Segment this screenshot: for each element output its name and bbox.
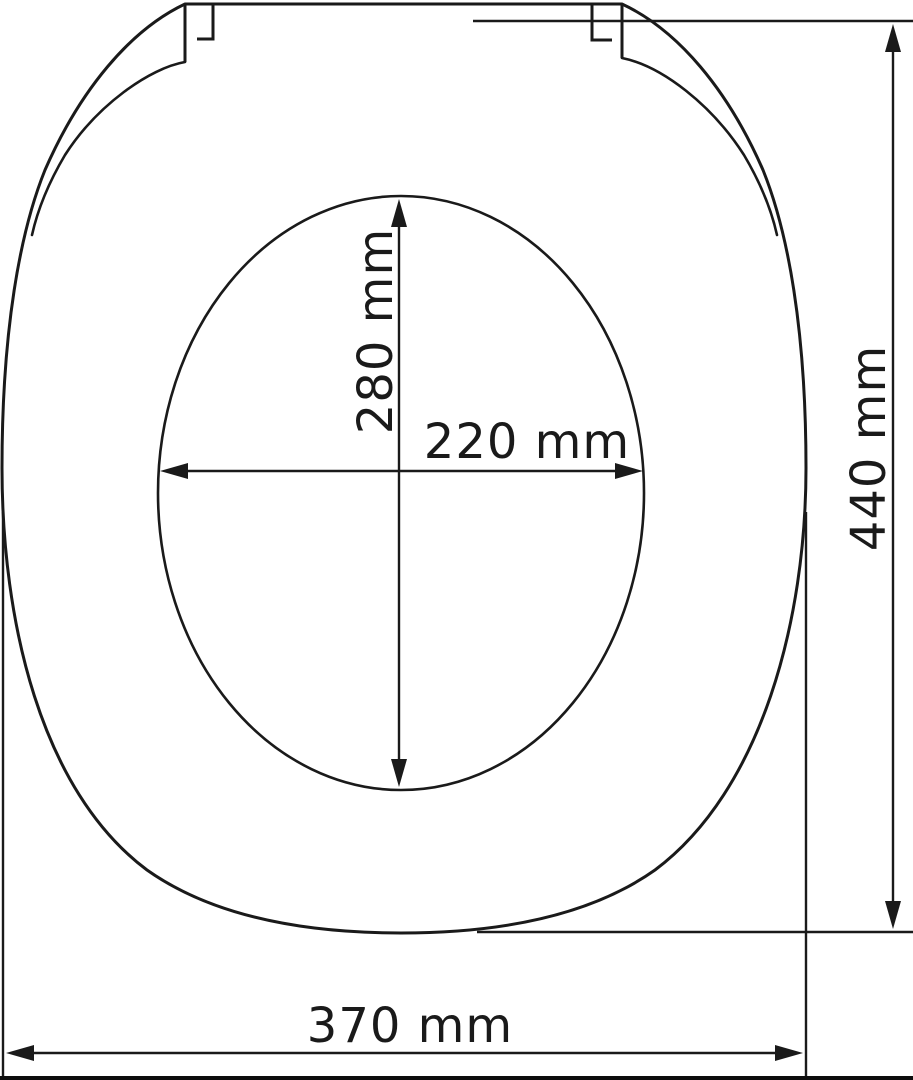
arrow-down-icon <box>391 759 407 787</box>
dimension-overall-length: 440 mm <box>473 21 913 932</box>
dimension-diagram-page: 280 mm 220 mm 440 mm 370 mm <box>0 0 913 1080</box>
seat-back-edge-right <box>622 58 777 235</box>
opening-width-label: 220 mm <box>424 414 630 470</box>
toilet-seat-dimension-diagram: 280 mm 220 mm 440 mm 370 mm <box>0 0 913 1080</box>
seat-body <box>2 4 806 933</box>
arrow-up-icon <box>391 199 407 227</box>
dimension-overall-width: 370 mm <box>3 512 806 1080</box>
dimension-opening-length: 280 mm <box>348 199 407 787</box>
arrow-left-icon <box>160 463 188 479</box>
opening-length-label: 280 mm <box>348 228 404 434</box>
image-border-bottom <box>0 1076 913 1080</box>
seat-outer-outline <box>2 4 806 933</box>
overall-length-label: 440 mm <box>841 345 897 551</box>
arrow-down-icon <box>885 901 901 929</box>
overall-width-label: 370 mm <box>307 998 513 1054</box>
right-hinge <box>592 4 622 58</box>
left-hinge <box>185 4 213 62</box>
arrow-up-icon <box>885 24 901 52</box>
arrow-left-icon <box>6 1045 34 1061</box>
arrow-right-icon <box>775 1045 803 1061</box>
